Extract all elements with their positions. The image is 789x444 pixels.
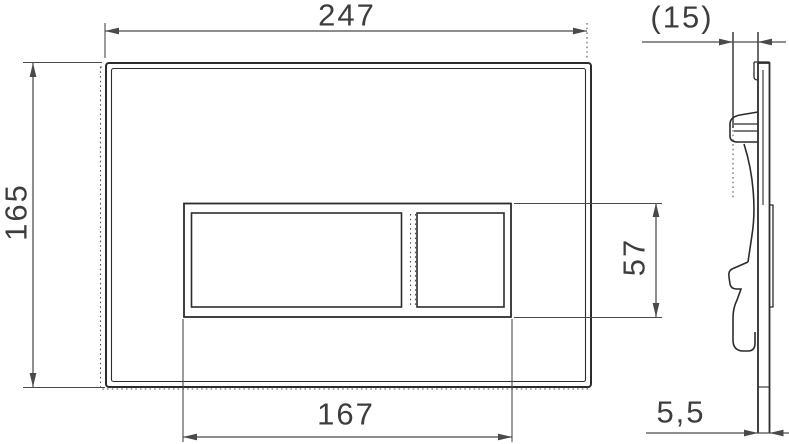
arrowhead xyxy=(30,373,37,387)
arrowhead xyxy=(498,434,512,441)
profile-top-cap xyxy=(754,62,770,80)
dimension-depth xyxy=(642,39,786,46)
arrowhead xyxy=(758,39,772,46)
clip-teeth xyxy=(734,124,758,131)
arrowhead xyxy=(30,63,37,77)
arrowhead xyxy=(744,430,758,437)
label-depth-reference: (15) xyxy=(650,2,713,33)
arrowhead xyxy=(770,430,784,437)
arrowhead xyxy=(183,434,197,441)
arrowhead xyxy=(719,39,733,46)
clip-body xyxy=(730,112,758,142)
arrowhead xyxy=(653,203,660,217)
label-plate-height: 165 xyxy=(1,183,32,241)
drawing-linework xyxy=(0,0,789,444)
front-view xyxy=(101,63,592,389)
upper-mounting-clip xyxy=(730,112,758,142)
arrowhead xyxy=(105,28,119,35)
arrowhead xyxy=(573,28,587,35)
dimension-thickness xyxy=(646,430,789,437)
lower-mounting-hook xyxy=(729,262,755,351)
spring-lever xyxy=(744,144,754,262)
label-button-area-height: 57 xyxy=(619,238,650,276)
label-plate-width: 247 xyxy=(318,0,376,31)
dimension-plate-height xyxy=(23,63,105,388)
arrowhead xyxy=(653,303,660,317)
label-plate-thickness: 5,5 xyxy=(656,397,705,428)
technical-drawing-canvas: 247 165 167 57 (15) 5,5 xyxy=(0,0,789,444)
label-button-area-width: 167 xyxy=(317,399,375,430)
side-view xyxy=(729,32,773,433)
plate-outline xyxy=(106,63,591,387)
plate-profile xyxy=(758,63,770,433)
